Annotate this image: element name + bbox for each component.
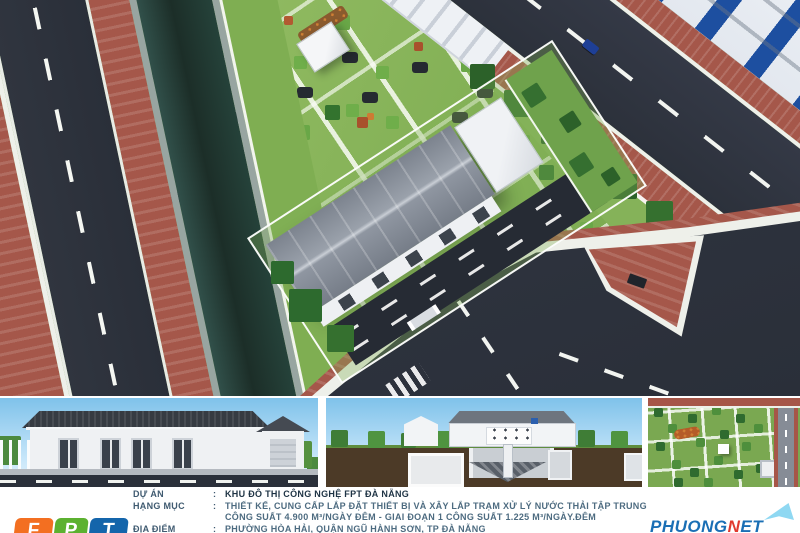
elevation-panel <box>0 398 318 487</box>
plan-top-sidewalk <box>648 398 800 406</box>
scope-text: THIẾT KẾ, CUNG CẤP LẮP ĐẶT THIẾT BỊ VÀ X… <box>225 501 647 513</box>
plan-small-building <box>718 444 729 454</box>
sail-icon <box>764 503 794 520</box>
equipment-units <box>486 427 532 445</box>
hipped-roof <box>22 411 270 428</box>
trees <box>326 398 327 399</box>
fpt-tile-p: P <box>53 518 89 533</box>
center-pipe <box>503 444 513 478</box>
fpt-logo: F P T <box>12 518 129 533</box>
scope-row: HẠNG MỤC : THIẾT KẾ, CUNG CẤP LẮP ĐẶT TH… <box>133 501 693 513</box>
underground-tank-left <box>408 453 464 487</box>
garage-door <box>270 439 296 467</box>
siteplan-panel <box>648 398 800 487</box>
door-window <box>131 438 152 470</box>
plan-road <box>774 398 798 487</box>
underground-tank-right <box>548 450 572 480</box>
contractor-logo: PHUONGNET <box>650 517 798 533</box>
large-tree-canopies <box>0 0 1 1</box>
location-text: PHƯỜNG HÒA HẢI, QUẬN NGŨ HÀNH SƠN, TP ĐÀ… <box>225 524 486 533</box>
section-panel <box>326 398 642 487</box>
location-row: ĐỊA ĐIỂM : PHƯỜNG HÒA HẢI, QUẬN NGŨ HÀNH… <box>133 524 693 533</box>
door-window <box>172 438 193 470</box>
door-window <box>58 438 79 470</box>
capacity-text: CÔNG SUẤT 4.900 M³/NGÀY ĐÊM - GIAI ĐOẠN … <box>225 512 596 524</box>
fpt-tile-f: F <box>13 518 54 533</box>
background-trees <box>0 398 1 399</box>
plan-top-curb <box>648 406 800 408</box>
title-block: DỰ ÁN : KHU ĐÔ THỊ CÔNG NGHỆ FPT ĐÀ NẴNG… <box>133 489 693 533</box>
hall-roof <box>443 411 580 423</box>
scope-row-2: CÔNG SUẤT 4.900 M³/NGÀY ĐÊM - GIAI ĐOẠN … <box>133 512 693 524</box>
underground-tank-far-right <box>624 453 642 481</box>
blue-window <box>531 418 538 424</box>
white-fence <box>0 440 30 472</box>
lane-dashes <box>0 480 318 483</box>
project-name: KHU ĐÔ THỊ CÔNG NGHỆ FPT ĐÀ NẴNG <box>225 489 409 501</box>
aerial-render <box>0 0 800 396</box>
door-window <box>100 438 121 470</box>
location-label: ĐỊA ĐIỂM <box>133 524 213 533</box>
project-poster: DỰ ÁN : KHU ĐÔ THỊ CÔNG NGHỆ FPT ĐÀ NẴNG… <box>0 0 800 533</box>
project-row: DỰ ÁN : KHU ĐÔ THỊ CÔNG NGHỆ FPT ĐÀ NẴNG <box>133 489 693 501</box>
scope-label: HẠNG MỤC <box>133 501 213 513</box>
project-label: DỰ ÁN <box>133 489 213 501</box>
fpt-tile-t: T <box>88 518 129 533</box>
